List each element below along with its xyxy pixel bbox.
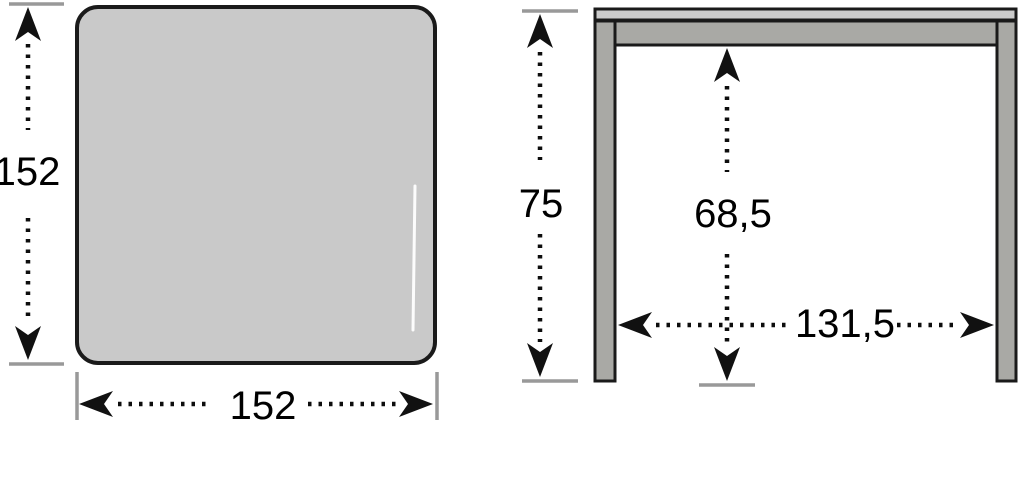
arrow-down-icon <box>15 326 41 360</box>
top-view-width-dimension: 152 <box>77 372 437 428</box>
side-view: 75 68,5 131,5 <box>519 9 1016 385</box>
side-view-clearance-height-label: 68,5 <box>694 192 772 236</box>
top-view-width-label: 152 <box>230 384 297 428</box>
arrow-left-icon <box>618 312 652 338</box>
side-view-clearance-width-dimension: 131,5 <box>618 302 994 346</box>
arrow-down-icon <box>714 347 740 381</box>
side-view-clearance-height-dimension: 68,5 <box>694 48 772 385</box>
tabletop-surface <box>77 7 435 363</box>
side-left-leg <box>595 21 615 381</box>
side-apron <box>615 21 997 45</box>
side-view-clearance-width-label: 131,5 <box>795 302 895 346</box>
furniture-dimension-diagram: 152 152 <box>0 0 1020 482</box>
arrow-left-icon <box>79 391 113 417</box>
side-tabletop-edge <box>595 9 1016 20</box>
side-right-leg <box>997 21 1016 381</box>
tabletop-highlight <box>413 186 415 330</box>
arrow-right-icon <box>960 312 994 338</box>
top-view-height-label: 152 <box>0 150 60 194</box>
arrow-down-icon <box>527 343 553 377</box>
arrow-right-icon <box>399 391 433 417</box>
arrow-up-icon <box>527 14 553 48</box>
diagram-canvas: 152 152 <box>0 0 1020 482</box>
arrow-up-icon <box>15 7 41 41</box>
arrow-up-icon <box>714 48 740 82</box>
top-view: 152 152 <box>0 4 437 428</box>
side-view-height-dimension: 75 <box>519 11 578 381</box>
side-view-height-label: 75 <box>519 182 564 226</box>
top-view-height-dimension: 152 <box>0 4 64 364</box>
